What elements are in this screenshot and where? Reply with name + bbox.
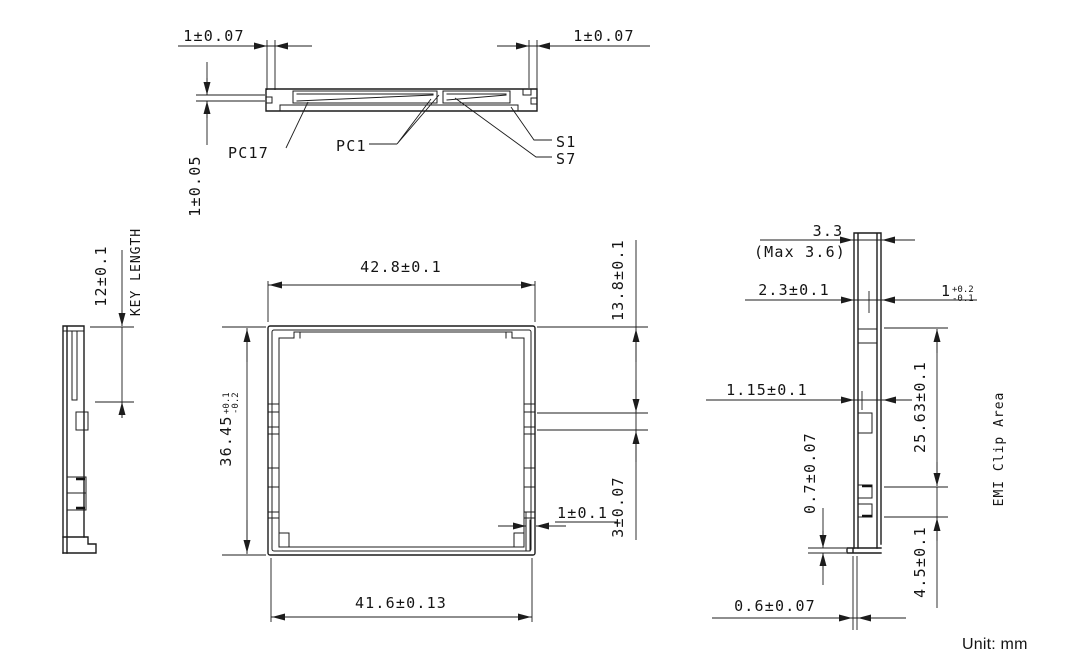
dim-bottom-lip: 0.6±0.07 [734, 597, 816, 615]
label-pc1: PC1 [336, 137, 367, 155]
dim-width-bottom: 41.6±0.13 [355, 594, 447, 612]
key-length-label: KEY LENGTH [129, 228, 144, 316]
dim-corner: 1±0.1 [557, 504, 608, 522]
dim-tab-height: 3±0.07 [609, 476, 627, 537]
dim-end-right: 1±0.07 [573, 27, 634, 45]
dim-lip-thickness: 1±0.05 [186, 155, 204, 216]
label-pc17: PC17 [228, 144, 269, 162]
dim-end-left: 1±0.07 [183, 27, 244, 45]
dim-thickness: 3.3 [813, 222, 844, 240]
label-s1: S1 [556, 133, 576, 151]
front-view: 42.8±0.1 41.6±0.13 36.45 +0.1 -0.2 13.8±… [217, 239, 648, 622]
unit-label: Unit: mm [962, 636, 1028, 653]
emi-clip-area-label: EMI Clip Area [992, 392, 1007, 507]
dim-rail: 1.15±0.1 [726, 381, 808, 399]
dim-width-top: 42.8±0.1 [360, 258, 442, 276]
technical-drawing: 1±0.07 1±0.07 1±0.05 PC17 PC1 S1 S7 12±0… [0, 0, 1086, 660]
dim-emi-offset: 25.63±0.1 [911, 361, 929, 453]
drawing-page: 1±0.07 1±0.07 1±0.05 PC17 PC1 S1 S7 12±0… [0, 0, 1086, 660]
dim-tab-offset: 13.8±0.1 [609, 239, 627, 321]
dim-lip: 1 [941, 282, 951, 300]
dim-body: 2.3±0.1 [758, 281, 830, 299]
dim-thickness-max: (Max 3.6) [754, 243, 846, 261]
dim-height: 36.45 [217, 415, 235, 466]
left-side-view: 12±0.1 KEY LENGTH [63, 228, 144, 553]
dim-lip-tol-minus: -0.1 [952, 294, 974, 304]
dim-key-length: 12±0.1 [92, 245, 110, 306]
right-side-view: 3.3 (Max 3.6) 2.3±0.1 1 +0.2 -0.1 1.15±0… [706, 222, 1007, 630]
dim-emi-height: 4.5±0.1 [911, 526, 929, 598]
top-section-view: 1±0.07 1±0.07 1±0.05 PC17 PC1 S1 S7 [178, 27, 650, 217]
dim-foot: 0.7±0.07 [801, 432, 819, 514]
label-s7: S7 [556, 150, 576, 168]
dim-height-tol-minus: -0.2 [231, 392, 241, 414]
